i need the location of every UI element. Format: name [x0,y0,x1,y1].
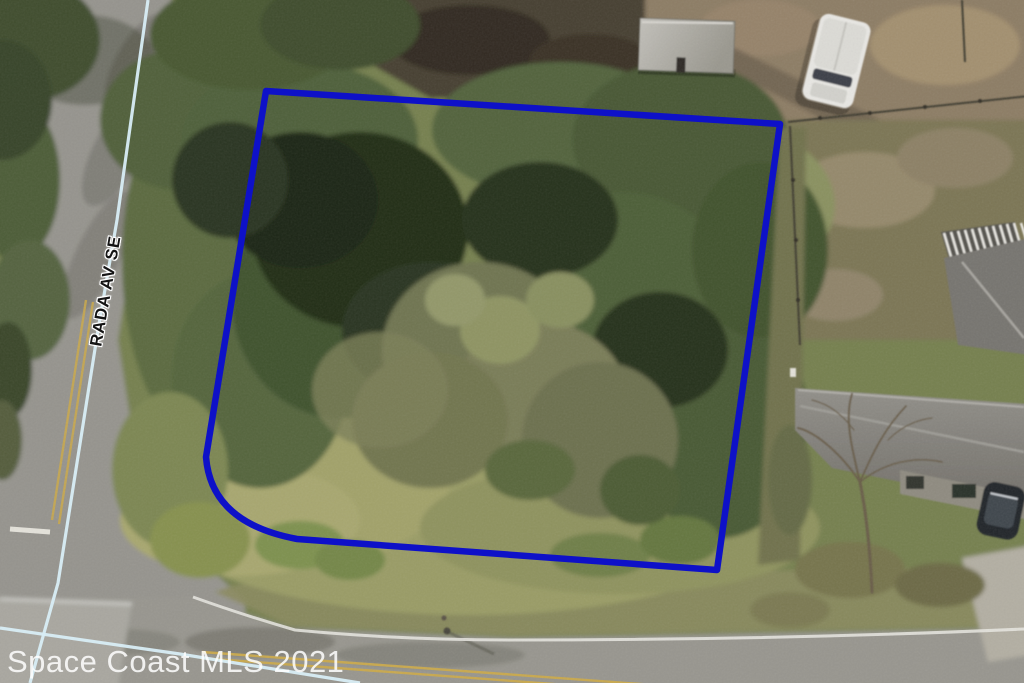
photo-grain [0,0,1024,683]
aerial-listing-photo: RADA AV SE Space Coast MLS 2021 [0,0,1024,683]
watermark: Space Coast MLS 2021 [7,644,344,680]
aerial-photo-canvas [0,0,1024,683]
